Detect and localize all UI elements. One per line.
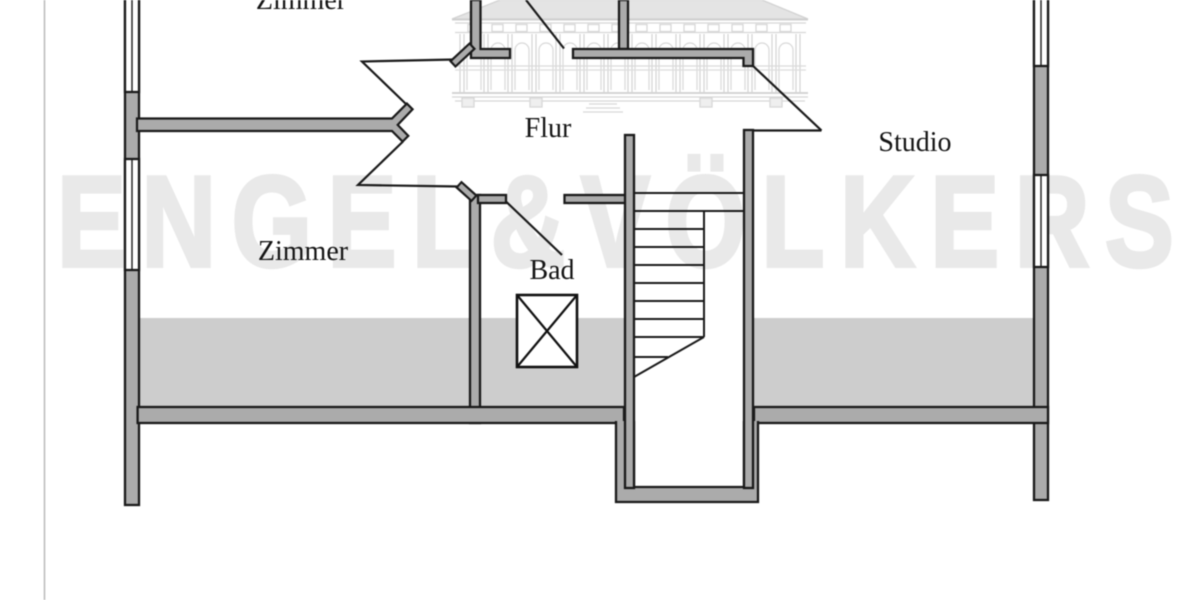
svg-text:Zimmer: Zimmer (256, 0, 347, 16)
svg-text:Studio: Studio (878, 127, 951, 158)
svg-text:Bad: Bad (529, 255, 574, 286)
svg-text:Zimmer: Zimmer (258, 236, 349, 267)
svg-text:Flur: Flur (525, 113, 572, 144)
